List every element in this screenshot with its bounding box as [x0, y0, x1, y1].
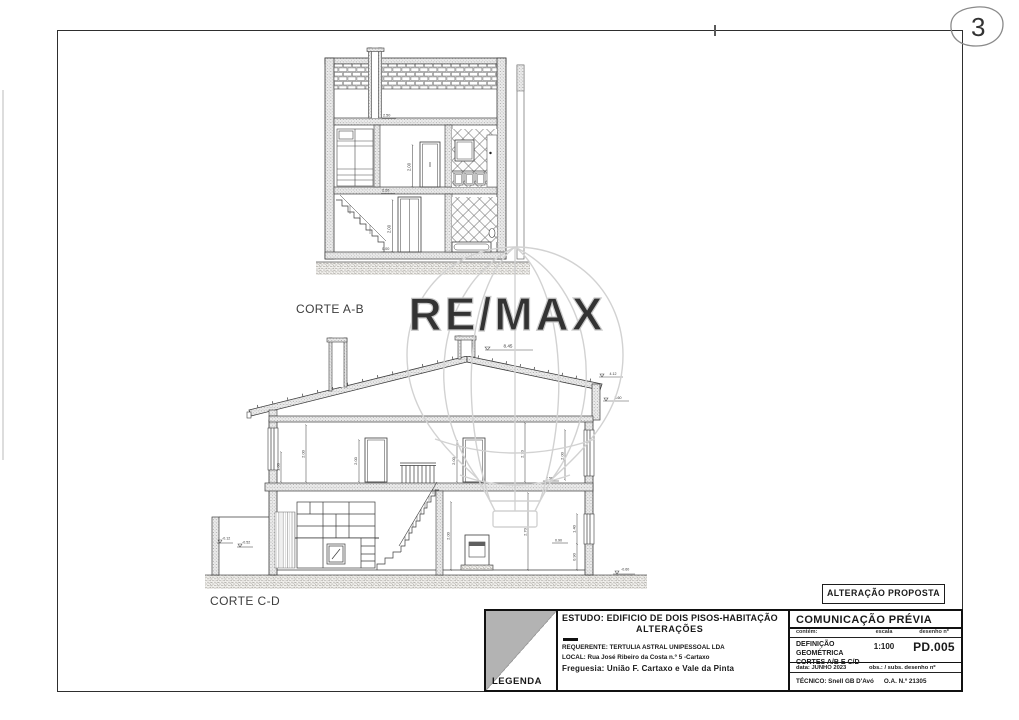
ab-bathtub	[452, 242, 491, 252]
obs-value: obs.: / subs. desenho nº	[869, 665, 961, 671]
tecnico-row: TÉCNICO: Snell GB D'Avó O.A. N.º 21305	[790, 673, 961, 690]
frame-tick-mark	[714, 25, 716, 36]
header-escala: escala	[861, 629, 907, 637]
escala-value: 1:100	[861, 638, 907, 662]
content-row: DEFINIÇÃO GEOMÉTRICA CORTES A/B E C/D 1:…	[790, 638, 961, 663]
ordem-value: O.A. N.º 21305	[884, 678, 927, 685]
ab-door-upper	[420, 142, 440, 187]
data-value: data: JUNHO 2023	[790, 665, 869, 671]
cd-fireplace	[461, 535, 493, 570]
local: LOCAL: Rua José Ribeiro da Costa n.º 5 -…	[562, 654, 784, 661]
cd-oven	[327, 544, 345, 564]
sheet-number: 3	[971, 12, 985, 42]
comunicacao-title: COMUNICAÇÃO PRÉVIA	[790, 611, 961, 629]
desenho-value: PD.005	[907, 638, 961, 662]
header-desenho: desenho nº	[907, 629, 961, 637]
ab-roof-tiles	[334, 64, 497, 89]
scan-edge-artifact	[2, 90, 4, 460]
dim-label: 2.00	[353, 456, 358, 465]
dim-label: 0.90	[572, 552, 577, 561]
cd-stair-wall	[436, 491, 443, 575]
data-row: data: JUNHO 2023 obs.: / subs. desenho n…	[790, 663, 961, 673]
estudo-title-line2: ALTERAÇÕES	[636, 624, 784, 635]
dim-label: 2.70	[523, 527, 528, 536]
cd-ground	[205, 575, 647, 589]
dim-label: 2.00	[301, 449, 306, 458]
freguesia: Freguesia: União F. Cartaxo e Vale da Pi…	[562, 664, 784, 673]
dim-label: 2.00	[387, 224, 392, 233]
ab-upper-floor	[337, 125, 497, 187]
ab-mirror	[455, 140, 474, 161]
comunicacao-cell: COMUNICAÇÃO PRÉVIA contém: escala desenh…	[790, 611, 961, 690]
ab-chimney	[367, 48, 384, 118]
cd-window-right-lower	[584, 514, 594, 544]
title-block: LEGENDA ESTUDO: EDIFICIO DE DOIS PISOS-H…	[484, 609, 963, 692]
level-label: -0.12	[222, 537, 230, 541]
cd-door-right	[463, 438, 485, 482]
level-label: 2.56	[546, 477, 553, 481]
corte-cd-label: CORTE C-D	[210, 594, 280, 608]
level-label: 0.90	[555, 539, 562, 543]
level-label: -0.52	[242, 541, 250, 545]
cd-roof	[247, 355, 602, 418]
dim-label: 2.70	[520, 449, 525, 458]
cd-shutter-panel	[275, 512, 295, 568]
ab-stairs	[336, 195, 386, 252]
sheet-number-circle: 3	[944, 4, 1010, 50]
cd-chimney-left	[327, 338, 347, 391]
ab-ground	[316, 262, 530, 275]
legend-label: LEGENDA	[492, 676, 542, 687]
dim-label: 1.00	[276, 462, 281, 471]
dim-label: 3.60	[615, 396, 622, 400]
corte-ab-label: CORTE A-B	[296, 302, 364, 316]
ab-lower-floor	[336, 194, 497, 252]
dim-label: 2.00	[446, 531, 451, 540]
column-headers: contém: escala desenho nº	[790, 629, 961, 638]
ab-bathroom-upper	[452, 129, 497, 187]
cd-kitchen-base	[295, 538, 379, 568]
cd-ground-floor	[275, 482, 493, 575]
alteracao-proposta-stamp: ALTERAÇÃO PROPOSTA	[822, 584, 945, 604]
dim-label: 8.45	[504, 344, 513, 349]
header-contem: contém:	[790, 629, 861, 637]
sheet: 3	[0, 0, 1019, 720]
tecnico-value: TÉCNICO: Snell GB D'Avó	[790, 678, 874, 685]
level-label: 0.00	[382, 247, 389, 251]
dim-label: 2.00	[560, 451, 565, 460]
dim-label: 1.40	[572, 524, 577, 533]
corte-ab-drawing: 2.00 2.00 2.50 2.20 0.00	[298, 45, 548, 300]
dim-label: 4.12	[610, 372, 617, 376]
level-label: 2.20	[382, 189, 389, 193]
ab-bathroom-lower	[452, 197, 497, 252]
estudo-cell: ESTUDO: EDIFICIO DE DOIS PISOS-HABITAÇÃO…	[558, 611, 790, 690]
ab-side-wall	[517, 65, 524, 259]
cd-door-left	[365, 438, 387, 482]
cd-parapet	[592, 384, 600, 420]
ab-wc	[489, 229, 495, 238]
estudo-title-line1: ESTUDO: EDIFICIO DE DOIS PISOS-HABITAÇÃO	[562, 613, 784, 624]
cd-kitchen-shelves	[297, 502, 375, 538]
corte-cd-drawing: 8.45 4.12 3.60 1.00 2.00 2.00 2.00 2.70 …	[203, 330, 653, 592]
cd-chimney-right	[455, 336, 476, 359]
legend-cell: LEGENDA	[486, 611, 558, 690]
ab-door-lower	[398, 197, 421, 252]
contem-value: DEFINIÇÃO GEOMÉTRICA CORTES A/B E C/D	[790, 638, 861, 662]
requerente: REQUERENTE: TERTULIA ASTRAL UNIPESSOAL L…	[562, 644, 784, 651]
divider-dash	[563, 638, 578, 641]
ab-wardrobe	[337, 129, 373, 186]
dim-label: 2.00	[451, 456, 456, 465]
level-label: 2.50	[383, 114, 390, 118]
cd-stair-railing-upper	[400, 463, 436, 483]
cd-gutter	[247, 412, 251, 418]
dim-label: 2.00	[407, 162, 412, 171]
cd-stairs	[377, 482, 439, 570]
cd-window-right-upper	[584, 430, 594, 476]
contem-line1: DEFINIÇÃO GEOMÉTRICA	[796, 640, 861, 658]
cd-upper-floor	[365, 438, 485, 483]
level-label: -0.60	[621, 568, 629, 572]
